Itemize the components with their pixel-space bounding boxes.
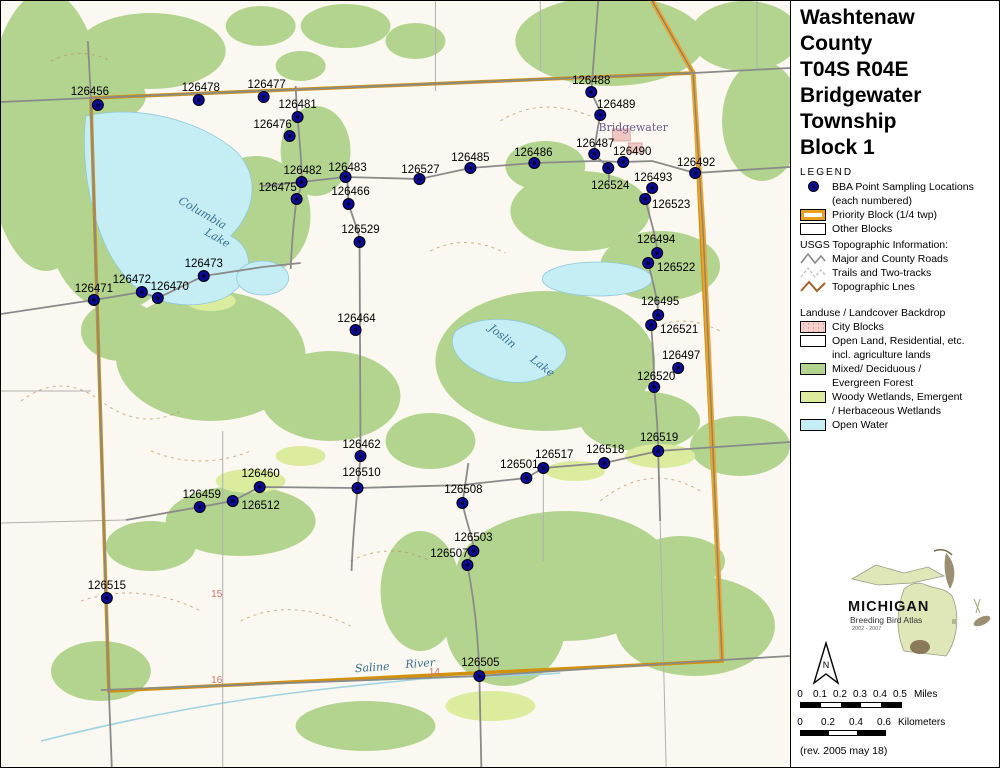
bba-point-core — [542, 466, 546, 470]
bba-point-label: 126529 — [341, 224, 379, 236]
logo-subtitle: Breeding Bird Atlas — [850, 615, 922, 625]
hawk-icon — [945, 553, 955, 589]
bba-point-label: 126470 — [151, 281, 189, 293]
north-arrow: N — [812, 641, 840, 687]
bba-point-core — [92, 298, 96, 302]
bba-point-label: 126523 — [652, 199, 690, 211]
forest-swatch — [800, 363, 826, 375]
bba-point-label: 126482 — [283, 165, 321, 177]
bba-point-core — [466, 563, 470, 567]
topo-map: ColumbiaLakeJoslinLakeBridgewaterSalineR… — [1, 1, 791, 768]
scale-unit: Miles — [914, 689, 937, 700]
bba-point-core — [105, 596, 109, 600]
bba-point-core — [258, 485, 262, 489]
title-line: Washtenaw — [800, 5, 1000, 31]
bba-point-core — [140, 290, 144, 294]
map-canvas: ColumbiaLakeJoslinLakeBridgewaterSalineR… — [1, 1, 790, 768]
bba-point-label: 126512 — [242, 500, 280, 512]
bba-point-core — [650, 186, 654, 190]
bba-point-core — [602, 461, 606, 465]
legend-item-topo: Topographic Lnes — [800, 280, 1000, 293]
bba-point-core — [472, 549, 476, 553]
bba-point-core — [344, 175, 348, 179]
bba-point-core — [643, 197, 647, 201]
legend-item-forest-2: Evergreen Forest — [832, 377, 913, 389]
bba-point-core — [359, 454, 363, 458]
bba-point-core — [652, 385, 656, 389]
quail-icon — [910, 640, 930, 654]
bba-point-label: 126505 — [461, 657, 499, 669]
usgs-heading: USGS Topographic Information: — [800, 239, 1000, 251]
bba-point-core — [469, 166, 473, 170]
legend-item-trails: Trails and Two-tracks — [800, 266, 1000, 279]
scale-tick: 0.4 — [873, 689, 887, 700]
bba-point-core — [621, 160, 625, 164]
logo-years: 2002 - 2007 — [852, 626, 881, 632]
bba-point-core — [478, 674, 482, 678]
place-label: 16 — [211, 675, 223, 686]
legend-item-city-blocks: City Blocks — [800, 320, 1000, 333]
bba-point-core — [676, 366, 680, 370]
map-title: Washtenaw County T04S R04E Bridgewater T… — [800, 5, 1000, 161]
bba-point-core — [197, 98, 201, 102]
bba-point-label: 126515 — [88, 580, 126, 592]
topo-line-icon — [800, 281, 826, 293]
scale-tick: 0.2 — [833, 689, 847, 700]
bba-point-label: 126519 — [640, 432, 678, 444]
bba-point-label: 126473 — [185, 258, 223, 270]
bba-point-label: 126495 — [641, 296, 679, 308]
bba-point-core — [231, 499, 235, 503]
scale-tick: 0.1 — [813, 689, 827, 700]
bba-point-core — [646, 261, 650, 265]
scale-tick: 0 — [797, 717, 803, 728]
bba-point-label: 126508 — [444, 484, 482, 496]
map-document: ColumbiaLakeJoslinLakeBridgewaterSalineR… — [0, 0, 1000, 768]
bba-point-label: 126521 — [660, 324, 698, 336]
legend-item-bba-points-2: (each numbered) — [832, 195, 912, 207]
place-label: Bridgewater — [598, 121, 668, 134]
bba-point-label: 126490 — [613, 146, 651, 158]
legend-item-bba-points: BBA Point Sampling Locations — [800, 180, 1000, 193]
sparrow-icon — [972, 614, 992, 629]
bba-point-label: 126475 — [258, 182, 296, 194]
open-water-swatch — [800, 419, 826, 431]
scale-tick: 0.6 — [877, 717, 891, 728]
bba-point-label: 126456 — [71, 86, 109, 98]
bba-point-label: 126471 — [75, 283, 113, 295]
bba-point-label: 126462 — [342, 439, 380, 451]
bba-point-label: 126510 — [342, 467, 380, 479]
bba-point-core — [354, 328, 358, 332]
hawk-wing-icon — [934, 550, 952, 555]
title-line: Bridgewater — [800, 83, 1000, 109]
bba-point-label: 126481 — [278, 99, 316, 111]
bba-point-label: 126459 — [183, 489, 221, 501]
bba-point-label: 126476 — [254, 119, 292, 131]
bba-point-label: 126488 — [572, 75, 610, 87]
bba-point-core — [358, 240, 362, 244]
scale-bar — [800, 730, 886, 736]
legend-item-priority-block: Priority Block (1/4 twp) — [800, 208, 1000, 221]
bba-point-core — [202, 274, 206, 278]
open-land-swatch — [800, 335, 826, 347]
bba-point-core — [606, 166, 610, 170]
bba-point-label: 126503 — [454, 532, 492, 544]
bba-point-icon — [800, 181, 826, 193]
bba-point-core — [296, 115, 300, 119]
legend-item-open-land: Open Land, Residential, etc. — [800, 334, 1000, 347]
scalebar-kilometers: 00.20.40.6Kilometers — [800, 717, 995, 743]
scale-tick: 0.3 — [853, 689, 867, 700]
bba-point-label: 126489 — [597, 99, 635, 111]
place-label: 15 — [211, 589, 223, 600]
bba-point-label: 126507 — [430, 548, 468, 560]
bba-point-core — [198, 505, 202, 509]
bba-point-core — [347, 202, 351, 206]
bba-point-label: 126524 — [591, 180, 630, 192]
place-label: 14 — [429, 667, 441, 678]
place-label: Saline — [355, 660, 390, 675]
bba-point-core — [525, 476, 529, 480]
title-line: Block 1 — [800, 135, 1000, 161]
bba-point-label: 126497 — [662, 350, 700, 362]
scale-bar — [800, 702, 902, 708]
bba-point-label: 126520 — [637, 371, 675, 383]
bba-point-core — [655, 251, 659, 255]
scale-tick: 0.5 — [893, 689, 907, 700]
roads-line-icon — [800, 253, 826, 265]
legend-item-wetland-2: / Herbaceous Wetlands — [832, 405, 941, 417]
bba-point-label: 126477 — [248, 79, 286, 91]
bba-point-core — [656, 313, 660, 317]
bba-point-label: 126460 — [242, 468, 280, 480]
bba-point-core — [656, 449, 660, 453]
bba-point-core — [693, 171, 697, 175]
bba-point-label: 126494 — [637, 234, 676, 246]
bba-point-core — [592, 152, 596, 156]
legend-item-open-water: Open Water — [800, 418, 1000, 431]
legend-item-roads: Major and County Roads — [800, 252, 1000, 265]
scale-tick: 0.4 — [849, 717, 863, 728]
bba-point-core — [589, 90, 593, 94]
trails-line-icon — [800, 267, 826, 279]
wetland-swatch — [800, 391, 826, 403]
title-line: Township — [800, 109, 1000, 135]
bba-point-label: 126517 — [535, 449, 573, 461]
scale-unit: Kilometers — [898, 717, 945, 728]
branch-icon — [974, 599, 980, 613]
logo-numeral: II — [952, 619, 956, 626]
michigan-bba-logo: MICHIGAN Breeding Bird Atlas 2002 - 2007… — [834, 549, 999, 667]
bba-point-core — [295, 197, 299, 201]
scale-tick: 0.2 — [821, 717, 835, 728]
legend-heading: LEGEND — [800, 167, 1000, 178]
bba-point-core — [356, 486, 360, 490]
landuse-heading: Landuse / Landcover Backdrop — [800, 307, 1000, 319]
bba-point-label: 126518 — [586, 444, 624, 456]
city-blocks-swatch — [800, 321, 826, 333]
bba-point-label: 126522 — [657, 262, 695, 274]
title-line: County — [800, 31, 1000, 57]
bba-point-core — [418, 177, 422, 181]
scalebar-miles: 00.10.20.30.40.5Miles — [800, 689, 995, 715]
logo-title: MICHIGAN — [848, 599, 929, 615]
legend-item-wetland: Woody Wetlands, Emergent — [800, 390, 1000, 403]
bba-point-core — [96, 103, 100, 107]
bba-point-core — [288, 134, 292, 138]
bba-point-core — [300, 180, 304, 184]
bba-point-label: 126472 — [113, 274, 151, 286]
bba-point-core — [262, 95, 266, 99]
bba-point-label: 126501 — [500, 459, 538, 471]
bba-point-core — [649, 323, 653, 327]
bba-point-core — [533, 161, 537, 165]
bba-point-core — [598, 113, 602, 117]
other-blocks-swatch — [800, 223, 826, 235]
priority-block-swatch — [800, 209, 826, 221]
scale-tick: 0 — [797, 689, 803, 700]
legend-item-forest: Mixed/ Deciduous / — [800, 362, 1000, 375]
bba-point-label: 126478 — [182, 82, 220, 94]
revision-note: (rev. 2005 may 18) — [800, 745, 887, 757]
bba-point-label: 126466 — [331, 186, 369, 198]
bba-point-label: 126464 — [337, 313, 376, 325]
east-pond — [542, 262, 652, 296]
bba-point-core — [461, 501, 465, 505]
legend-panel: Washtenaw County T04S R04E Bridgewater T… — [792, 1, 1000, 768]
north-label: N — [823, 660, 830, 670]
bba-point-core — [156, 296, 160, 300]
legend-item-open-land-2: incl. agriculture lands — [832, 349, 931, 361]
title-line: T04S R04E — [800, 57, 1000, 83]
legend-item-other-blocks: Other Blocks — [800, 222, 1000, 235]
